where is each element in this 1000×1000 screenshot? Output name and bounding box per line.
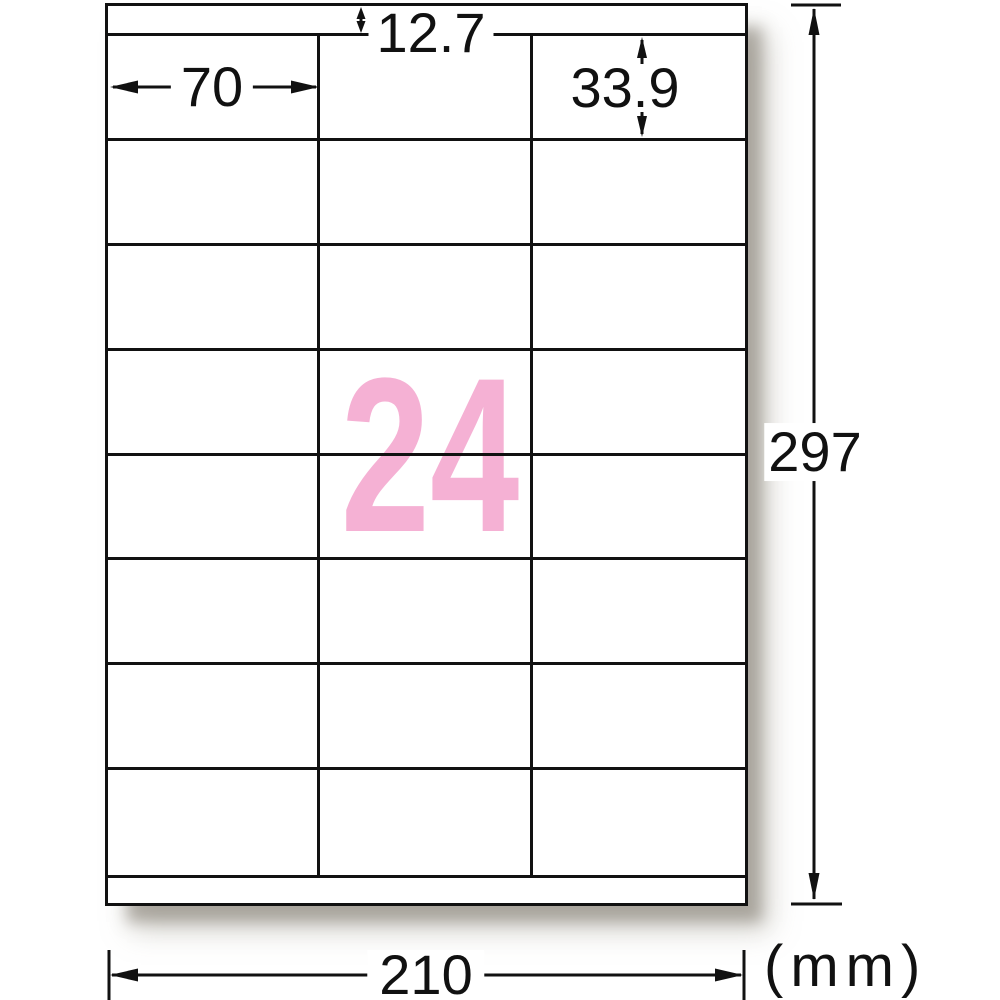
label-grid — [108, 33, 745, 878]
label-sheet: 24 — [105, 3, 748, 906]
page-width-dimension-label: 210 — [367, 950, 484, 1000]
label-cell — [320, 770, 532, 875]
label-cell — [533, 141, 745, 246]
label-cell — [533, 560, 745, 665]
label-cell — [108, 665, 320, 770]
unit-label: (mm) — [764, 938, 927, 996]
label-width-dimension-label: 70 — [171, 62, 253, 112]
top-margin-dimension-label: 12.7 — [369, 8, 494, 58]
label-cell — [533, 351, 745, 456]
label-cell — [108, 246, 320, 351]
label-cell — [108, 351, 320, 456]
label-cell — [108, 560, 320, 665]
label-sheet-diagram: 24 — [0, 0, 1000, 1000]
label-cell — [320, 456, 532, 561]
label-cell — [320, 246, 532, 351]
label-cell — [320, 141, 532, 246]
label-cell — [533, 456, 745, 561]
label-cell — [108, 141, 320, 246]
label-cell — [320, 560, 532, 665]
label-cell — [320, 351, 532, 456]
label-cell — [533, 770, 745, 875]
label-cell — [108, 456, 320, 561]
label-height-dimension-label: 33.9 — [571, 65, 680, 111]
label-cell — [533, 246, 745, 351]
label-cell — [108, 770, 320, 875]
label-cell — [320, 665, 532, 770]
page-height-dimension-label: 297 — [764, 423, 865, 481]
label-cell — [533, 665, 745, 770]
